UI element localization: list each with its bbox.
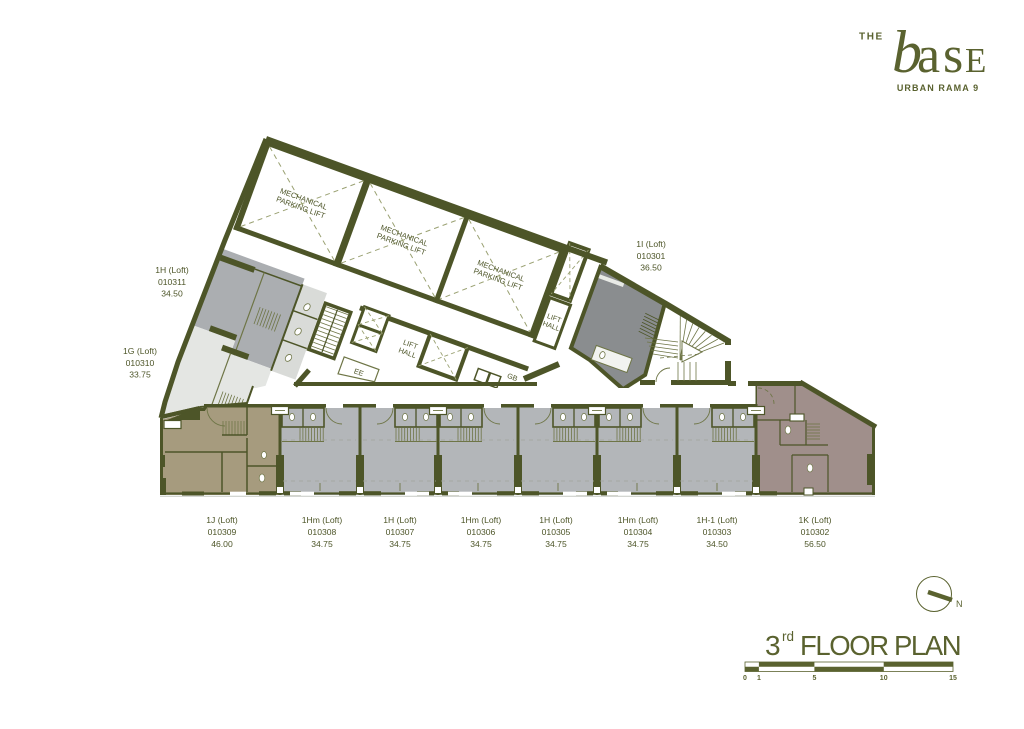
svg-text:34.50: 34.50 [161,289,183,299]
svg-text:34.75: 34.75 [545,539,567,549]
svg-text:33.75: 33.75 [129,370,151,380]
svg-text:010308: 010308 [308,527,337,537]
svg-text:010309: 010309 [208,527,237,537]
svg-text:46.00: 46.00 [211,539,233,549]
svg-text:1K (Loft): 1K (Loft) [799,515,832,525]
svg-text:1Hm (Loft): 1Hm (Loft) [618,515,659,525]
svg-text:1H (Loft): 1H (Loft) [383,515,417,525]
svg-text:1H (Loft): 1H (Loft) [539,515,573,525]
svg-text:0: 0 [743,675,747,682]
svg-text:3: 3 [765,630,781,661]
svg-text:010303: 010303 [703,527,732,537]
svg-text:5: 5 [812,675,816,682]
svg-text:010307: 010307 [386,527,415,537]
svg-text:1I (Loft): 1I (Loft) [636,239,666,249]
svg-text:34.75: 34.75 [311,539,333,549]
svg-text:1Hm (Loft): 1Hm (Loft) [461,515,502,525]
svg-text:56.50: 56.50 [804,539,826,549]
svg-text:URBAN RAMA 9: URBAN RAMA 9 [897,83,979,93]
svg-text:N: N [956,599,963,609]
svg-text:s: s [943,27,963,84]
svg-text:a: a [917,27,940,84]
svg-text:1G (Loft): 1G (Loft) [123,346,157,356]
svg-text:010306: 010306 [467,527,496,537]
svg-text:1: 1 [757,675,761,682]
svg-text:1H (Loft): 1H (Loft) [155,265,189,275]
svg-text:1H-1 (Loft): 1H-1 (Loft) [696,515,737,525]
svg-text:010310: 010310 [126,358,155,368]
svg-text:36.50: 36.50 [640,263,662,273]
svg-text:010301: 010301 [637,251,666,261]
svg-text:E: E [965,41,986,80]
svg-text:34.75: 34.75 [627,539,649,549]
svg-text:010304: 010304 [624,527,653,537]
svg-text:010311: 010311 [158,277,186,287]
svg-text:010302: 010302 [801,527,830,537]
svg-text:34.75: 34.75 [389,539,411,549]
svg-text:1J (Loft): 1J (Loft) [206,515,238,525]
svg-text:THE: THE [859,32,884,43]
svg-text:10: 10 [880,675,888,682]
svg-text:010305: 010305 [542,527,571,537]
svg-text:34.75: 34.75 [470,539,492,549]
svg-text:FLOOR PLAN: FLOOR PLAN [800,630,960,661]
svg-text:1Hm (Loft): 1Hm (Loft) [302,515,343,525]
svg-text:34.50: 34.50 [706,539,728,549]
svg-text:15: 15 [949,675,957,682]
svg-text:rd: rd [782,629,794,644]
